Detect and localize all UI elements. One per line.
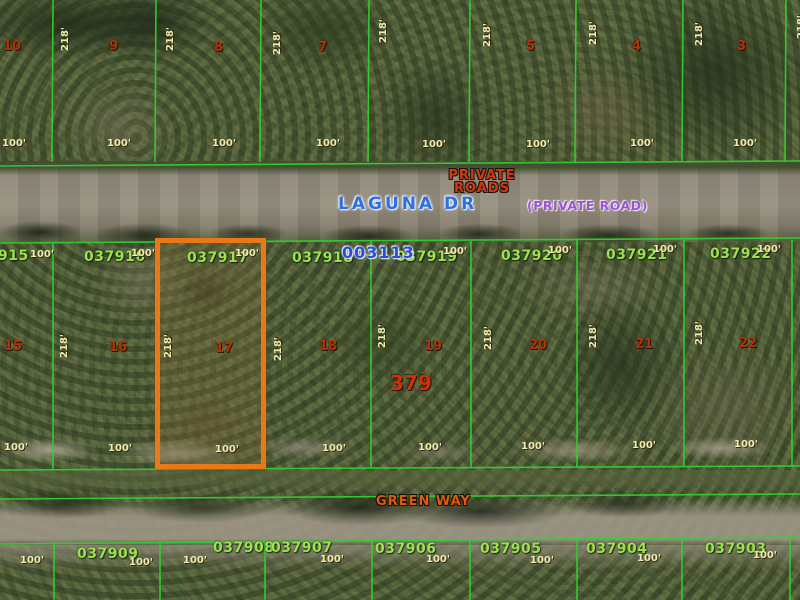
dimension-label: 218' — [484, 326, 494, 350]
dimension-label: 100' — [637, 554, 661, 564]
street-label-laguna-dr: LAGUNA DR — [338, 196, 477, 213]
dimension-label: 100' — [235, 249, 259, 259]
dimension-label: 218' — [695, 22, 705, 46]
lot-number: 10 — [3, 40, 21, 53]
dimension-label: 218' — [273, 31, 283, 55]
lot-number: 20 — [529, 339, 547, 352]
plat-number-blue: 003113 — [342, 245, 415, 261]
dimension-label: 100' — [734, 440, 758, 450]
parcel-id: 037908 — [213, 541, 274, 555]
dimension-label: 218' — [695, 321, 705, 345]
dimension-label: 218' — [166, 27, 176, 51]
dimension-label: 218' — [274, 337, 284, 361]
dimension-label: 100' — [4, 443, 28, 453]
dimension-label: 218' — [61, 27, 71, 51]
dimension-label: 100' — [426, 555, 450, 565]
lot-number: 8 — [214, 41, 223, 54]
dimension-label: 100' — [30, 250, 54, 260]
dimension-label: 100' — [320, 555, 344, 565]
dimension-label: 100' — [2, 139, 26, 149]
dimension-label: 218' — [589, 324, 599, 348]
parcel-id: 037905 — [480, 542, 541, 556]
lot-number: 21 — [635, 338, 653, 351]
dimension-label: 100' — [316, 139, 340, 149]
dimension-label: 100' — [530, 556, 554, 566]
dimension-label: 100' — [630, 139, 654, 149]
dimension-label: 218' — [589, 21, 599, 45]
street-label-private-roads: PRIVATE ROADS — [447, 169, 517, 195]
street-label-green-way: GREEN WAY — [376, 495, 471, 508]
lot-number: 4 — [632, 40, 641, 53]
dimension-label: 100' — [422, 140, 446, 150]
dimension-label: 100' — [548, 246, 572, 256]
lot-number: 7 — [318, 41, 327, 54]
dimension-label: 100' — [418, 443, 442, 453]
dimension-label: 218' — [60, 334, 70, 358]
dimension-label: 100' — [632, 441, 656, 451]
dimension-label: 100' — [526, 140, 550, 150]
lot-number: 16 — [109, 341, 127, 354]
parcel-id: 037907 — [271, 541, 332, 555]
dimension-label: 100' — [215, 445, 239, 455]
street-label-private-road: (PRIVATE ROAD) — [527, 200, 648, 213]
dimension-label: 100' — [212, 139, 236, 149]
dimension-label: 100' — [443, 247, 467, 257]
lot-number: 9 — [109, 40, 118, 53]
dimension-label: 100' — [20, 556, 44, 566]
dimension-label: 100' — [107, 139, 131, 149]
dimension-label: 100' — [129, 558, 153, 568]
dimension-label: 218' — [483, 23, 493, 47]
dimension-label: 218' — [379, 19, 389, 43]
dimension-label: 100' — [733, 139, 757, 149]
dimension-label: 100' — [653, 245, 677, 255]
parcel-id: 915 — [0, 249, 29, 263]
lot-number: 18 — [319, 340, 337, 353]
lot-number: 17 — [215, 342, 233, 355]
dimension-label: 100' — [131, 249, 155, 259]
parcel-map[interactable]: 10 9 8 7 5 4 3 218' 218' 218' 218' 218' … — [0, 0, 800, 600]
lot-number: 5 — [526, 40, 535, 53]
dimension-label: 100' — [322, 444, 346, 454]
lot-number: 19 — [424, 340, 442, 353]
dimension-label: 100' — [183, 556, 207, 566]
dimension-label: 100' — [521, 442, 545, 452]
lot-number: 22 — [739, 337, 757, 350]
lot-number: 3 — [737, 40, 746, 53]
dimension-label: 218' — [378, 324, 388, 348]
block-number: 379 — [390, 373, 432, 393]
dimension-label: 100' — [753, 551, 777, 561]
lot-number: 15 — [4, 340, 22, 353]
dimension-label: 218' — [164, 334, 174, 358]
dimension-label: 100' — [757, 245, 781, 255]
dimension-label: 100' — [108, 444, 132, 454]
